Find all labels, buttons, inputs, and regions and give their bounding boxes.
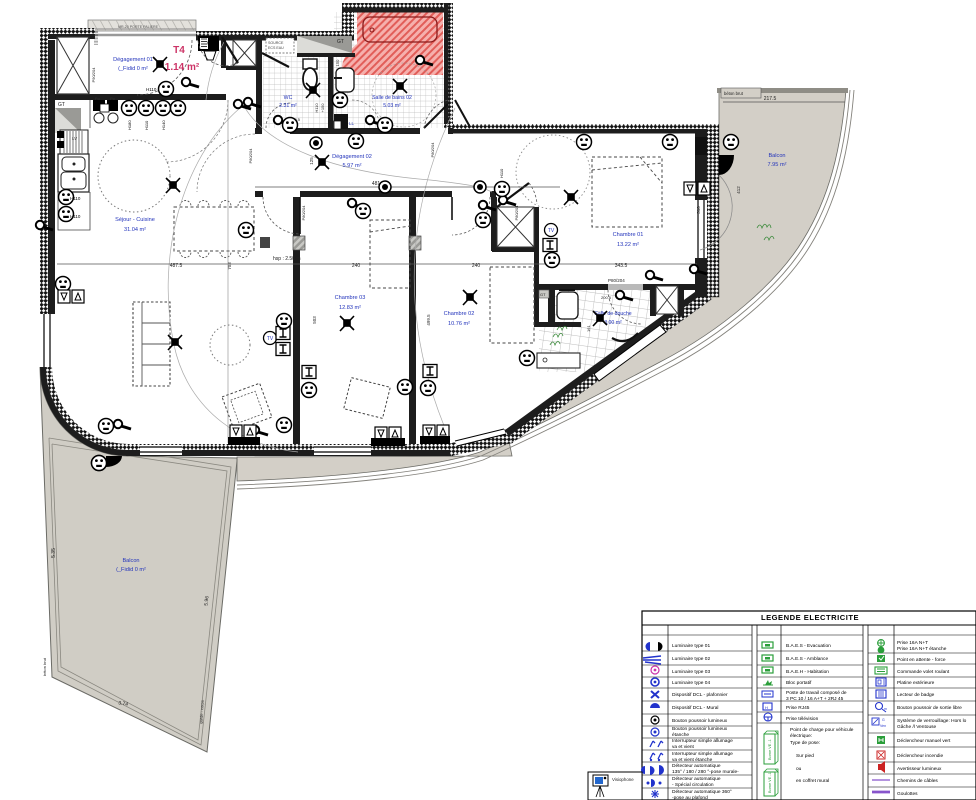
svg-text:hsp : 2.50 m: hsp : 2.50 m <box>273 256 301 262</box>
svg-text:5.03 m²: 5.03 m² <box>383 103 401 109</box>
svg-text:B.A.E.H - Habitation: B.A.E.H - Habitation <box>786 669 829 675</box>
svg-text:(_Fidid 0 m²: (_Fidid 0 m² <box>118 66 148 72</box>
svg-text:Gâche /l Ventouse: Gâche /l Ventouse <box>897 724 937 730</box>
svg-text:135° / 180 / 280 °-pose murale: 135° / 180 / 280 °-pose murale- <box>672 769 739 775</box>
svg-text:Ven: Ven <box>880 724 886 728</box>
svg-text:WC: WC <box>284 95 293 101</box>
svg-text:240: 240 <box>472 263 481 269</box>
svg-text:503: 503 <box>312 316 317 324</box>
svg-text:GT: GT <box>58 102 65 108</box>
svg-text:Salle de bains 02: Salle de bains 02 <box>372 95 412 101</box>
svg-text:Interrupteur simple allumage: Interrupteur simple allumage <box>672 738 733 744</box>
svg-text:Luminaire type 01: Luminaire type 01 <box>672 643 710 649</box>
svg-text:Chemins de câbles: Chemins de câbles <box>897 778 938 784</box>
svg-text:2.31 m²: 2.31 m² <box>279 103 297 109</box>
svg-text:Dégagement 01: Dégagement 01 <box>113 57 153 63</box>
svg-text:Prise RJ45: Prise RJ45 <box>786 705 810 711</box>
svg-text:ECS EAU: ECS EAU <box>268 46 284 50</box>
svg-text:LL: LL <box>349 121 355 126</box>
svg-text:Séjour - Cuisine: Séjour - Cuisine <box>115 217 155 223</box>
svg-text:Système de verrouillage: Hors: Système de verrouillage: Hors lo <box>897 718 967 724</box>
svg-text:Avertisseur lumineux: Avertisseur lumineux <box>897 766 942 772</box>
svg-text:T4: T4 <box>173 45 185 56</box>
svg-text:Bouton poussoir lumineux: Bouton poussoir lumineux <box>672 726 728 732</box>
svg-text:Détecteur automatique: Détecteur automatique <box>672 776 721 782</box>
svg-text:Chambre 01: Chambre 01 <box>613 232 644 238</box>
svg-text:499.5: 499.5 <box>426 314 431 326</box>
svg-text:Visiophone: Visiophone <box>612 777 634 782</box>
svg-text:LEGENDE ELECTRICITE: LEGENDE ELECTRICITE <box>761 613 859 622</box>
svg-text:B.A.E.S - Evacuation: B.A.E.S - Evacuation <box>786 643 831 649</box>
svg-text:GT: GT <box>540 292 546 297</box>
svg-text:H: H <box>765 705 768 710</box>
svg-text:H110: H110 <box>70 196 81 201</box>
svg-text:Lecteur de badge: Lecteur de badge <box>897 692 935 698</box>
svg-text:Balcon: Balcon <box>768 153 785 159</box>
svg-text:5.96: 5.96 <box>204 596 211 607</box>
svg-text:Borne VE -1: Borne VE -1 <box>768 739 772 760</box>
svg-text:Déclencheur manuel vert: Déclencheur manuel vert <box>897 738 951 744</box>
svg-text:Déclencheur incendie: Déclencheur incendie <box>897 753 943 759</box>
svg-text:SOURCE: SOURCE <box>268 41 284 45</box>
svg-text:Dispositif DCL - plafonnier: Dispositif DCL - plafonnier <box>672 692 728 698</box>
svg-text:Dispositif DCL - Mural: Dispositif DCL - Mural <box>672 705 718 711</box>
svg-text:412: 412 <box>736 186 741 194</box>
svg-text:200.5: 200.5 <box>601 295 612 300</box>
svg-text:en coffret mural: en coffret mural <box>796 778 829 784</box>
svg-text:7.95 m²: 7.95 m² <box>768 162 787 168</box>
svg-text:G: G <box>882 718 885 722</box>
svg-text:Poste de travail composé de: Poste de travail composé de <box>786 690 847 696</box>
svg-text:703: 703 <box>227 262 232 270</box>
svg-text:P80/204: P80/204 <box>248 148 253 164</box>
svg-text:Détecteur automatique: Détecteur automatique <box>672 763 721 769</box>
svg-text:Borne VE -1: Borne VE -1 <box>768 772 772 793</box>
svg-text:va et vient étanche: va et vient étanche <box>672 757 713 763</box>
svg-text:Chambre 03: Chambre 03 <box>335 295 366 301</box>
svg-text:P80/204: P80/204 <box>430 142 435 158</box>
svg-text:MR-20 PORTE PALIERE: MR-20 PORTE PALIERE <box>118 25 159 29</box>
svg-text:B.A.E.S - Amblance: B.A.E.S - Amblance <box>786 656 828 662</box>
svg-text:étanche: étanche <box>672 732 689 738</box>
svg-text:P80/204: P80/204 <box>514 205 519 221</box>
svg-text:Po: Po <box>110 96 116 101</box>
svg-text:10.76 m²: 10.76 m² <box>448 321 470 327</box>
svg-text:- Spécial circulation: - Spécial circulation <box>672 782 714 788</box>
svg-text:béton brut: béton brut <box>724 91 744 96</box>
svg-text:+150: +150 <box>320 103 325 113</box>
svg-text:H110: H110 <box>314 103 319 113</box>
svg-text:Luminaire type 02: Luminaire type 02 <box>672 656 710 662</box>
svg-text:électrique:: électrique: <box>790 733 812 739</box>
svg-text:Interrupteur simple allumage: Interrupteur simple allumage <box>672 751 733 757</box>
svg-text:Prise 16A N+T étanche: Prise 16A N+T étanche <box>897 646 947 652</box>
svg-text:Point en attente - force: Point en attente - force <box>897 657 946 663</box>
svg-text:125: 125 <box>309 157 314 165</box>
svg-text:161: 161 <box>586 325 591 332</box>
svg-text:Luminaire type 03: Luminaire type 03 <box>672 669 710 675</box>
svg-text:P80/204: P80/204 <box>301 205 306 221</box>
svg-text:P90/204: P90/204 <box>91 67 96 83</box>
svg-text:13.22 m²: 13.22 m² <box>617 242 639 248</box>
svg-text:217.5: 217.5 <box>764 96 777 102</box>
svg-text:H140: H140 <box>161 120 166 130</box>
svg-text:Dégagement 02: Dégagement 02 <box>332 154 372 160</box>
svg-text:-pose au plafond: -pose au plafond <box>672 795 708 800</box>
svg-text:H110: H110 <box>146 87 157 92</box>
svg-text:Détecteur automatique 360°: Détecteur automatique 360° <box>672 789 732 795</box>
svg-text:H110: H110 <box>70 214 81 219</box>
svg-text:487.5: 487.5 <box>170 263 183 269</box>
svg-text:béton brut: béton brut <box>42 657 47 676</box>
svg-text:1.14 m²: 1.14 m² <box>165 62 200 73</box>
svg-text:Luminaire type 04: Luminaire type 04 <box>672 680 710 686</box>
svg-text:Fo: Fo <box>95 96 100 101</box>
svg-text:m: m <box>884 707 887 711</box>
svg-text:ou: ou <box>796 767 802 772</box>
svg-text:3 PC 10 / 16 A+T + 2RJ 45: 3 PC 10 / 16 A+T + 2RJ 45 <box>786 696 844 702</box>
svg-text:H180: H180 <box>127 120 132 130</box>
svg-text:GT: GT <box>337 39 344 45</box>
svg-text:(_Fidid 0 m²: (_Fidid 0 m² <box>116 567 146 573</box>
svg-text:31.04 m²: 31.04 m² <box>124 227 146 233</box>
svg-text:150: 150 <box>335 59 340 66</box>
svg-text:Chambre 02: Chambre 02 <box>444 311 475 317</box>
svg-text:Prise 16A N+T: Prise 16A N+T <box>897 640 928 646</box>
svg-text:Sur pied: Sur pied <box>796 753 814 759</box>
svg-text:va et vient: va et vient <box>672 744 695 750</box>
svg-text:Balcon: Balcon <box>122 558 139 564</box>
svg-text:Bouton poussoir lumineux: Bouton poussoir lumineux <box>672 718 728 724</box>
svg-text:H110: H110 <box>499 168 504 178</box>
svg-text:Bouton poussoir de sortie libr: Bouton poussoir de sortie libre <box>897 705 962 711</box>
svg-text:Type de pose:: Type de pose: <box>790 740 820 746</box>
svg-text:5.97 m²: 5.97 m² <box>343 163 362 169</box>
svg-text:LV: LV <box>72 136 77 141</box>
svg-text:343.5: 343.5 <box>615 263 628 269</box>
svg-text:Platine extérieure: Platine extérieure <box>897 680 935 686</box>
svg-text:310: 310 <box>696 206 701 214</box>
svg-text:12.83 m²: 12.83 m² <box>339 305 361 311</box>
svg-text:Commande volet roulant: Commande volet roulant <box>897 669 950 675</box>
svg-text:Prise télévision: Prise télévision <box>786 716 819 722</box>
svg-text:5.35: 5.35 <box>51 548 57 558</box>
svg-text:H110: H110 <box>144 120 149 130</box>
svg-text:Goulottes: Goulottes <box>897 791 918 797</box>
svg-text:P80/204: P80/204 <box>608 278 625 283</box>
svg-text:Point de charge pour véhicule: Point de charge pour véhicule <box>790 727 854 733</box>
svg-text:240: 240 <box>352 263 361 269</box>
svg-text:Bloc portatif: Bloc portatif <box>786 680 812 686</box>
